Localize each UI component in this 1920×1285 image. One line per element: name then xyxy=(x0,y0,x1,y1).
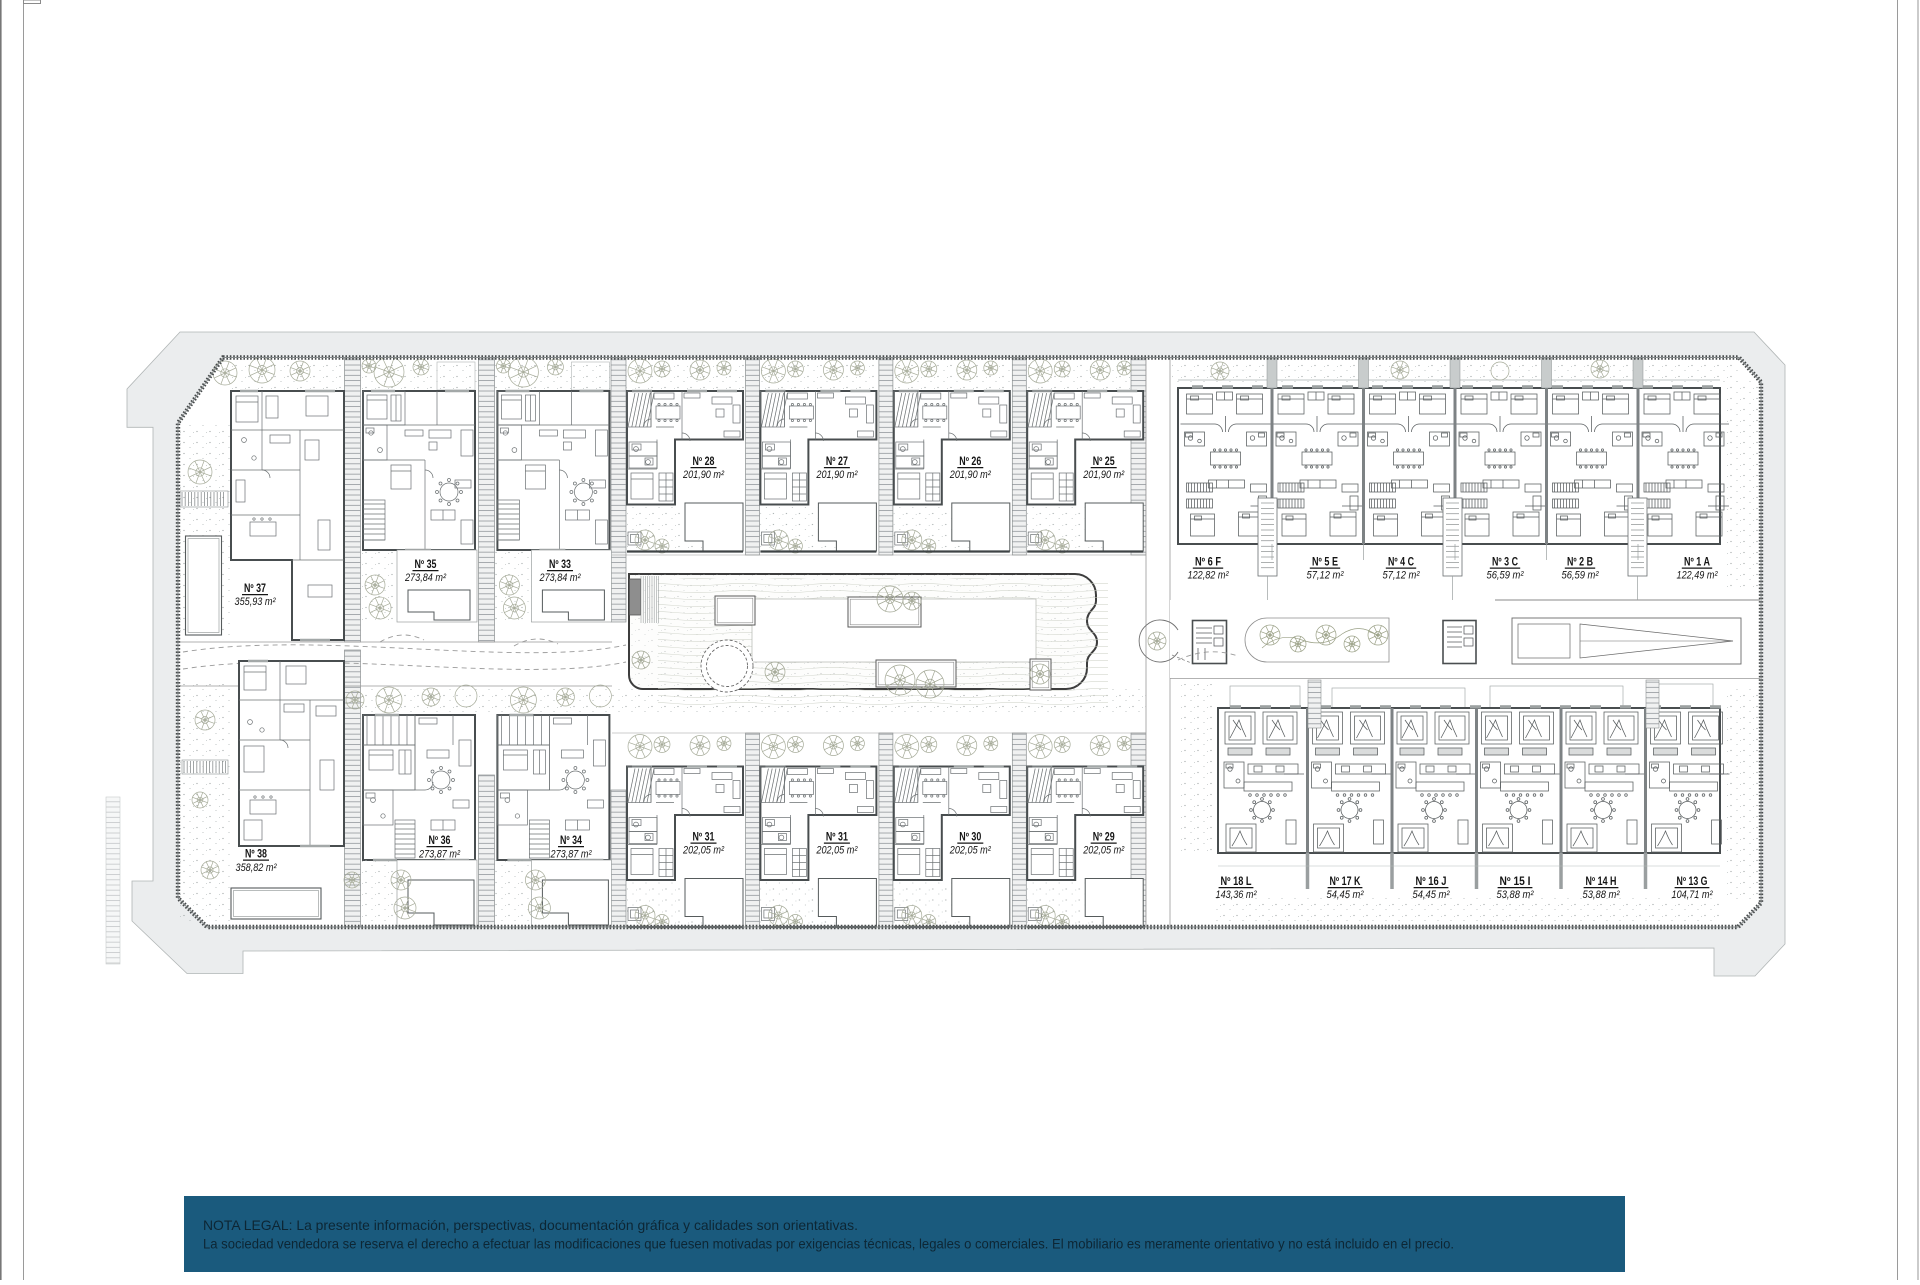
svg-text:Nº 36: Nº 36 xyxy=(429,835,451,847)
svg-text:358,82 m²: 358,82 m² xyxy=(236,862,277,874)
svg-text:202,05 m²: 202,05 m² xyxy=(682,845,724,857)
svg-text:Nº 2 B: Nº 2 B xyxy=(1567,557,1593,569)
svg-text:Nº 29: Nº 29 xyxy=(1093,832,1115,844)
svg-text:Nº 3 C: Nº 3 C xyxy=(1492,557,1518,569)
svg-text:Nº 6 F: Nº 6 F xyxy=(1195,557,1221,569)
svg-text:Nº 33: Nº 33 xyxy=(549,559,571,571)
svg-text:Nº 15 I: Nº 15 I xyxy=(1500,876,1531,888)
svg-text:201,90 m²: 201,90 m² xyxy=(1082,469,1124,481)
svg-text:NOTA LEGAL: La presente inform: NOTA LEGAL: La presente información, per… xyxy=(203,1217,858,1233)
svg-text:57,12 m²: 57,12 m² xyxy=(1307,570,1344,582)
svg-text:56,59 m²: 56,59 m² xyxy=(1562,570,1599,582)
svg-text:273,84 m²: 273,84 m² xyxy=(539,572,581,584)
svg-text:104,71 m²: 104,71 m² xyxy=(1672,889,1713,901)
svg-text:Nº 13 G: Nº 13 G xyxy=(1677,876,1708,888)
svg-text:122,82 m²: 122,82 m² xyxy=(1188,570,1229,582)
svg-text:201,90 m²: 201,90 m² xyxy=(816,469,858,481)
svg-text:Nº 31: Nº 31 xyxy=(826,832,848,844)
svg-text:Nº 34: Nº 34 xyxy=(560,835,582,847)
svg-text:53,88 m²: 53,88 m² xyxy=(1497,889,1534,901)
svg-text:Nº 31: Nº 31 xyxy=(693,832,715,844)
svg-text:Nº 5 E: Nº 5 E xyxy=(1312,557,1338,569)
svg-text:Nº 30: Nº 30 xyxy=(959,832,981,844)
svg-text:Nº 4 C: Nº 4 C xyxy=(1388,557,1414,569)
svg-text:273,84 m²: 273,84 m² xyxy=(404,572,446,584)
svg-text:273,87 m²: 273,87 m² xyxy=(550,849,592,861)
svg-text:Nº 38: Nº 38 xyxy=(245,849,267,861)
svg-text:54,45 m²: 54,45 m² xyxy=(1413,889,1450,901)
svg-text:Nº 14 H: Nº 14 H xyxy=(1586,876,1617,888)
svg-text:122,49 m²: 122,49 m² xyxy=(1677,570,1718,582)
svg-text:201,90 m²: 201,90 m² xyxy=(949,469,991,481)
svg-text:202,05 m²: 202,05 m² xyxy=(816,845,858,857)
svg-text:Nº 17 K: Nº 17 K xyxy=(1330,876,1362,888)
svg-text:56,59 m²: 56,59 m² xyxy=(1487,570,1524,582)
svg-text:La sociedad vendedora se reser: La sociedad vendedora se reserva el dere… xyxy=(203,1236,1454,1252)
svg-text:201,90 m²: 201,90 m² xyxy=(682,469,724,481)
svg-text:Nº 37: Nº 37 xyxy=(244,583,266,595)
svg-text:Nº 18 L: Nº 18 L xyxy=(1221,876,1252,888)
svg-text:Nº 25: Nº 25 xyxy=(1093,456,1115,468)
svg-text:202,05 m²: 202,05 m² xyxy=(949,845,991,857)
svg-text:Nº 35: Nº 35 xyxy=(415,559,437,571)
svg-text:202,05 m²: 202,05 m² xyxy=(1082,845,1124,857)
svg-text:Nº 28: Nº 28 xyxy=(693,456,715,468)
svg-text:Nº 16 J: Nº 16 J xyxy=(1416,876,1447,888)
svg-text:Nº 26: Nº 26 xyxy=(959,456,981,468)
svg-text:57,12 m²: 57,12 m² xyxy=(1383,570,1420,582)
svg-text:355,93 m²: 355,93 m² xyxy=(235,596,276,608)
svg-text:273,87 m²: 273,87 m² xyxy=(418,849,460,861)
svg-text:Nº 27: Nº 27 xyxy=(826,456,848,468)
svg-text:53,88 m²: 53,88 m² xyxy=(1583,889,1620,901)
svg-text:Nº 1 A: Nº 1 A xyxy=(1684,557,1710,569)
svg-text:143,36 m²: 143,36 m² xyxy=(1216,889,1257,901)
svg-text:54,45 m²: 54,45 m² xyxy=(1327,889,1364,901)
